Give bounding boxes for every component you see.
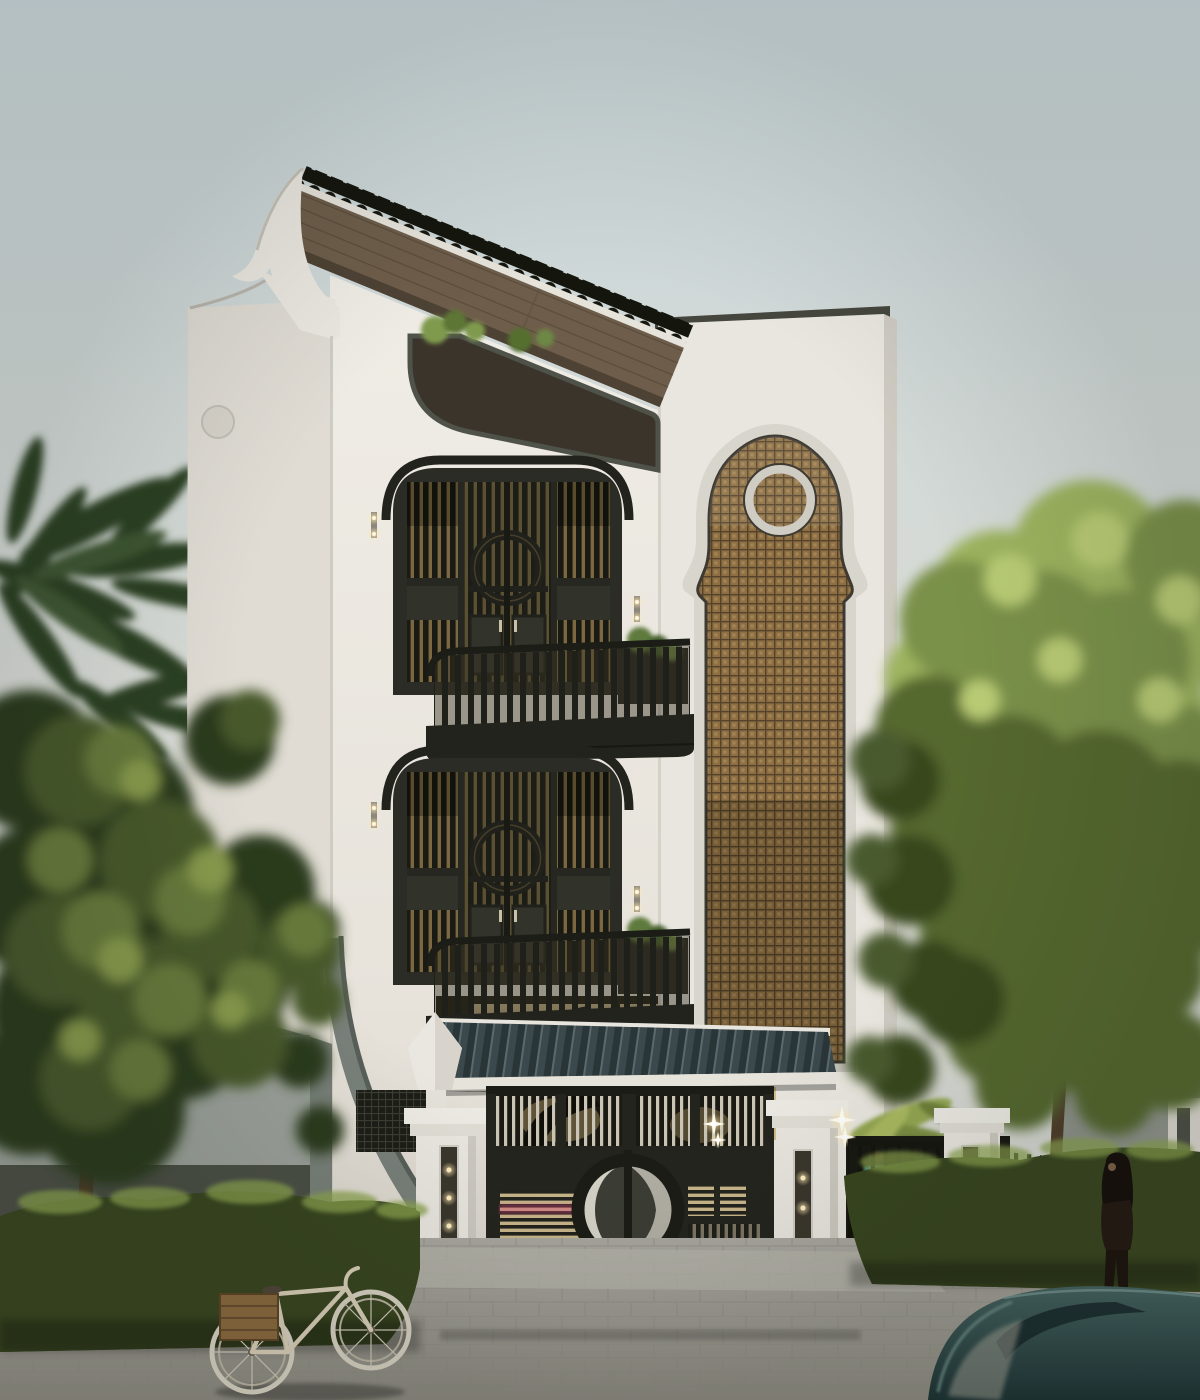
vignette-overlay [0,0,1200,1400]
scene-canvas [0,0,1200,1400]
architectural-render [0,0,1200,1400]
